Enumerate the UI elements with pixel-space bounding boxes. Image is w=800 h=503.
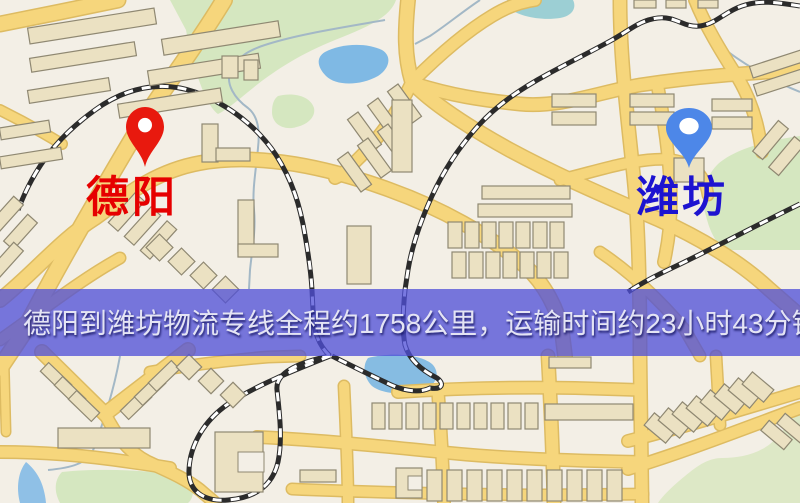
- destination-city-label: 潍坊: [636, 177, 728, 220]
- map-screenshot: 德阳 潍坊 德阳到潍坊物流专线全程约1758公里，运输时间约23小时43分钟.: [0, 0, 800, 503]
- destination-pin-icon: [666, 108, 712, 168]
- origin-city-label: 德阳: [86, 177, 178, 220]
- origin-pin-icon: [126, 107, 164, 167]
- map-canvas: [0, 0, 800, 503]
- route-info-banner: 德阳到潍坊物流专线全程约1758公里，运输时间约23小时43分钟.: [0, 289, 800, 356]
- route-info-text: 德阳到潍坊物流专线全程约1758公里，运输时间约23小时43分钟.: [23, 289, 800, 356]
